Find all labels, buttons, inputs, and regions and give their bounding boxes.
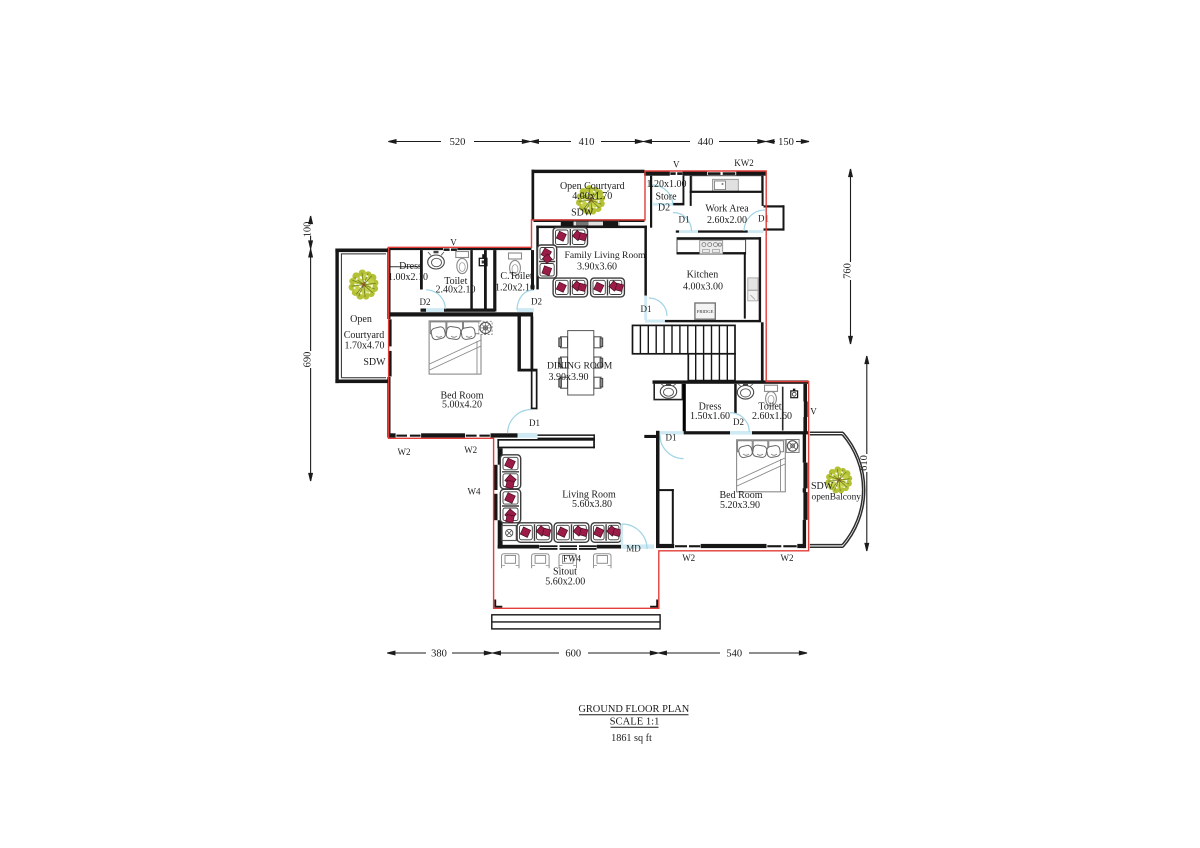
svg-text:520: 520 — [450, 137, 466, 148]
svg-text:KW2: KW2 — [734, 158, 754, 168]
svg-text:5.20x3.90: 5.20x3.90 — [720, 500, 760, 511]
svg-text:Store: Store — [655, 191, 677, 202]
svg-text:540: 540 — [726, 649, 742, 660]
svg-text:Work Area: Work Area — [705, 204, 749, 215]
svg-text:Open: Open — [350, 314, 372, 325]
svg-text:1.50x1.60: 1.50x1.60 — [690, 411, 730, 422]
svg-text:5.60x2.00: 5.60x2.00 — [545, 577, 585, 588]
svg-text:760: 760 — [843, 263, 854, 279]
svg-text:Kitchen: Kitchen — [687, 270, 719, 281]
svg-text:openBalcony: openBalcony — [812, 493, 862, 503]
svg-text:1861 sq ft: 1861 sq ft — [611, 733, 652, 744]
svg-text:W2: W2 — [682, 553, 695, 563]
svg-text:D1: D1 — [679, 215, 690, 225]
svg-text:440: 440 — [698, 137, 714, 148]
svg-text:C.Toilet: C.Toilet — [500, 271, 533, 282]
svg-text:W4: W4 — [468, 487, 481, 497]
svg-text:DINING ROOM: DINING ROOM — [547, 361, 613, 372]
svg-text:3.90x3.60: 3.90x3.60 — [577, 261, 617, 272]
svg-text:690: 690 — [303, 352, 314, 368]
svg-text:380: 380 — [431, 649, 447, 660]
svg-text:4.00x3.00: 4.00x3.00 — [683, 282, 723, 293]
svg-text:D1: D1 — [641, 304, 652, 314]
svg-text:V: V — [673, 160, 680, 170]
svg-text:4.00x1.70: 4.00x1.70 — [572, 191, 612, 202]
svg-text:2.60x2.00: 2.60x2.00 — [707, 215, 747, 226]
svg-text:MD: MD — [626, 544, 641, 554]
svg-text:D2: D2 — [658, 203, 670, 214]
svg-text:410: 410 — [579, 137, 595, 148]
svg-text:D1: D1 — [666, 433, 677, 443]
svg-text:V: V — [450, 238, 457, 248]
svg-text:D2: D2 — [733, 417, 744, 427]
svg-text:3.90x3.90: 3.90x3.90 — [549, 372, 589, 383]
svg-text:D1: D1 — [529, 418, 540, 428]
svg-text:W2: W2 — [398, 447, 411, 457]
svg-text:FW4: FW4 — [563, 554, 582, 564]
svg-text:Family Living Room: Family Living Room — [564, 250, 646, 261]
svg-text:150: 150 — [778, 137, 794, 148]
svg-text:D2: D2 — [420, 297, 431, 307]
svg-text:SDW: SDW — [363, 357, 386, 368]
svg-text:1.20x2.10: 1.20x2.10 — [495, 283, 535, 294]
svg-text:5.60x3.80: 5.60x3.80 — [572, 499, 612, 510]
svg-text:1.00x2.10: 1.00x2.10 — [388, 272, 428, 283]
svg-text:D1: D1 — [758, 214, 769, 224]
svg-text:W2: W2 — [781, 553, 794, 563]
svg-text:Courtyard: Courtyard — [344, 330, 385, 341]
svg-text:100: 100 — [303, 222, 314, 238]
svg-text:2.60x1.60: 2.60x1.60 — [752, 411, 792, 422]
svg-text:V: V — [810, 407, 817, 417]
svg-text:Dress: Dress — [399, 261, 422, 272]
svg-text:600: 600 — [565, 649, 581, 660]
svg-text:FRIDGE: FRIDGE — [697, 309, 714, 314]
svg-text:1.70x4.70: 1.70x4.70 — [345, 340, 385, 351]
svg-text:W2: W2 — [464, 445, 477, 455]
svg-text:5.00x4.20: 5.00x4.20 — [442, 399, 482, 410]
svg-text:SDW: SDW — [571, 208, 594, 219]
svg-text:GROUND FLOOR PLAN: GROUND FLOOR PLAN — [578, 704, 689, 715]
svg-text:2.40x2.10: 2.40x2.10 — [436, 285, 476, 296]
svg-text:D2: D2 — [531, 296, 542, 306]
svg-text:SDW: SDW — [811, 481, 834, 492]
svg-text:SCALE 1:1: SCALE 1:1 — [610, 717, 660, 728]
svg-text:1.20x1.00: 1.20x1.00 — [647, 179, 687, 190]
